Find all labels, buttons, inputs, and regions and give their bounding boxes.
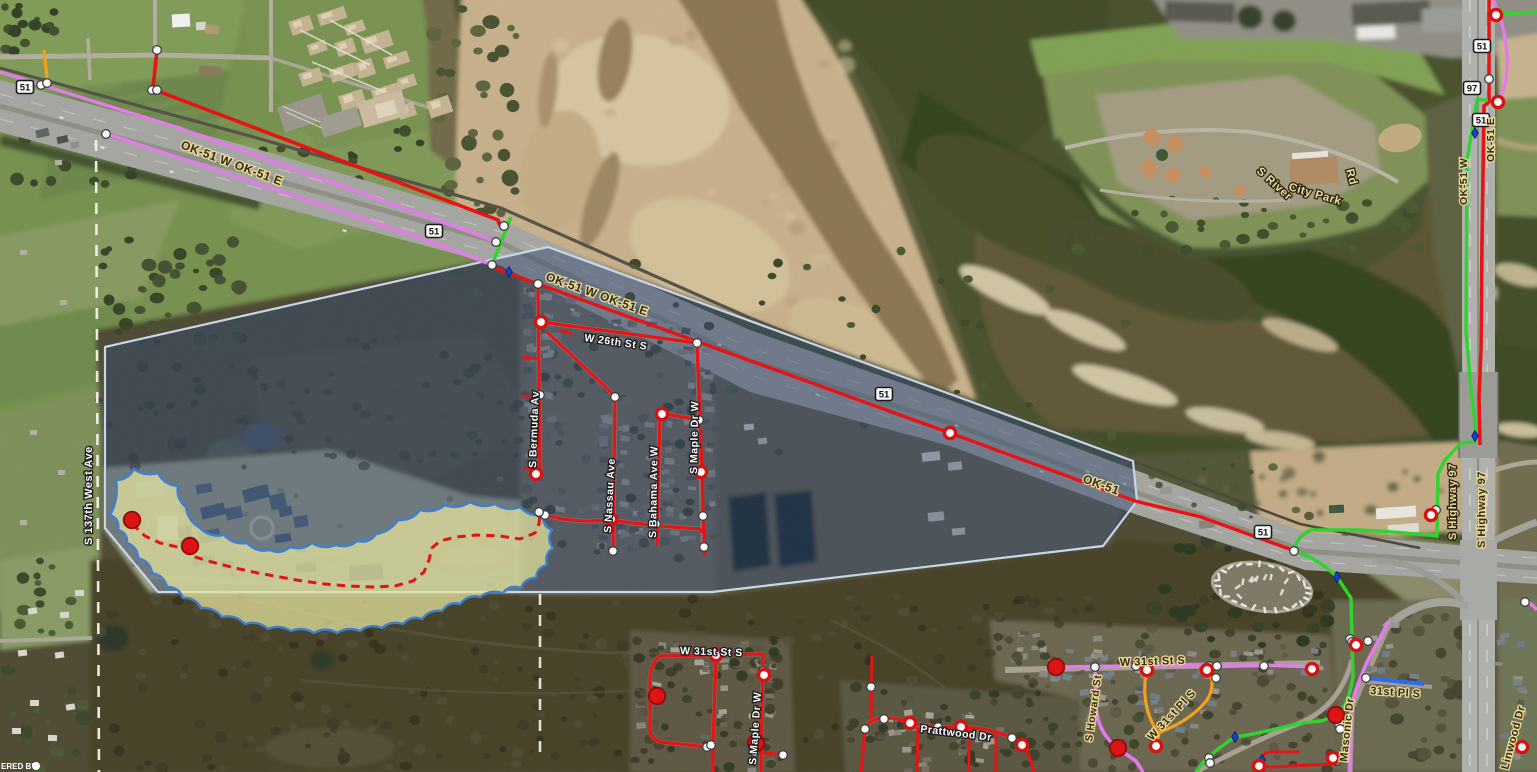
svg-text:S Maple Dr W: S Maple Dr W: [688, 401, 701, 474]
svg-text:51: 51: [20, 83, 31, 94]
svg-text:S Highway 97: S Highway 97: [1447, 463, 1459, 540]
svg-text:S Bahama Ave W: S Bahama Ave W: [647, 446, 661, 538]
svg-text:S Highway 97: S Highway 97: [1476, 471, 1488, 548]
svg-text:51: 51: [879, 390, 890, 401]
svg-text:97: 97: [1467, 84, 1478, 95]
svg-text:W 31st St S: W 31st St S: [1120, 655, 1186, 669]
svg-text:W 31st St S: W 31st St S: [680, 645, 743, 659]
svg-text:ERED BY: ERED BY: [1, 762, 37, 771]
svg-text:OK-51 W: OK-51 W: [1458, 158, 1470, 205]
svg-text:51: 51: [1258, 528, 1269, 539]
svg-text:51: 51: [1477, 42, 1488, 53]
svg-text:OK-51 E: OK-51 E: [1485, 118, 1497, 162]
svg-text:S 137th West Ave: S 137th West Ave: [83, 446, 95, 545]
svg-text:51: 51: [429, 227, 440, 238]
